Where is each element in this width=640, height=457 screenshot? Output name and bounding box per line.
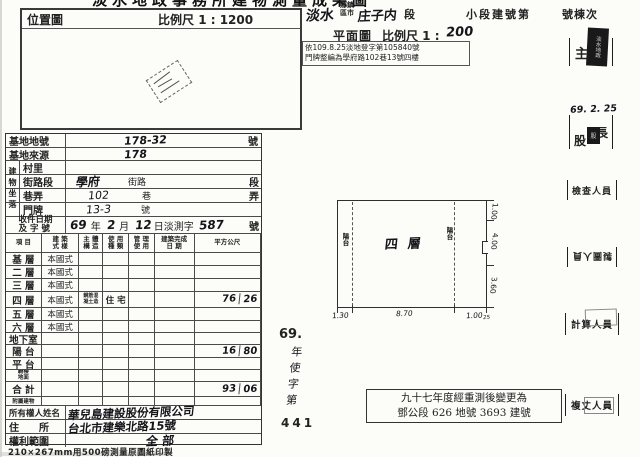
floor-area: 93: [195, 383, 241, 396]
lane-suffix: 弄: [249, 188, 259, 203]
floor-style: 本國式: [42, 308, 80, 320]
owner-addr-row: 住 所 台北市建樂北路15號: [6, 420, 261, 434]
floor-row: 五 層 本國式: [6, 308, 261, 321]
receipt-no-value: 587: [198, 218, 225, 233]
lane-mid: 巷: [142, 189, 151, 202]
use-permit-year: 69.: [279, 327, 302, 342]
plan-dashed-left: [352, 202, 353, 306]
dim-right-mid: 4.00: [489, 233, 500, 250]
floor-label: 合 計: [6, 382, 42, 396]
draftsman-label: 製圖人員: [572, 251, 612, 264]
receipt-day-value: 12: [134, 218, 152, 233]
table-row: 街路段 學府 街路 段: [6, 175, 261, 189]
dim-bottom-right: 1.00: [466, 311, 484, 321]
location-map-box: 位置圖 比例尺 1 : 1200: [20, 8, 302, 130]
table-row: 巷弄 102 巷 弄: [6, 189, 261, 203]
inspector-label: 檢查人員: [572, 184, 612, 197]
floor-area-dec: 06: [239, 383, 261, 395]
floor-label: 基 層: [6, 253, 42, 265]
floor-row: 六 層 本國式: [6, 321, 261, 333]
source-value: 178: [123, 147, 147, 161]
section-chief-stamp-text: 股: [590, 131, 596, 140]
plan-scale-value: 200: [445, 24, 474, 40]
address-change-note: 依109.8.25淡地登字第105840號 門牌整編為學府路102巷13號四樓: [302, 41, 470, 66]
dim-right-top: 1.00: [489, 203, 500, 220]
township-label: 鄉鎮 區市: [340, 1, 354, 17]
section-label: 段: [404, 6, 415, 22]
building-info-table: 建物坐落 基地地號 178-32 號 基地來源 178 村里 街路段 學府 街路…: [5, 133, 262, 445]
table-row: 基地來源 178: [6, 148, 261, 161]
chief-stamp: 淡水地政: [586, 27, 609, 66]
floor-style: 本國式: [42, 266, 80, 278]
lane-value: 102: [87, 189, 109, 203]
official-inspector: 檢查人員: [567, 180, 617, 200]
floor-style: 本國式: [42, 279, 80, 291]
paper-note: 210×267mm用500磅測量原圖紙印製: [8, 446, 173, 457]
header-area: 平方公尺: [195, 234, 261, 252]
use-permit: 69. 年使字第 441: [279, 327, 305, 430]
floor-row: 二 層 本國式: [6, 266, 261, 279]
location-map-scale: 比例尺 1 : 1200: [158, 11, 253, 28]
subsection-label: 小段建號第: [466, 6, 531, 22]
remark-line2: 鄧公段 626 地號 3693 建號: [367, 406, 561, 420]
receipt-no-label: 號: [249, 218, 259, 233]
plan-floor-label: 四層: [384, 232, 432, 253]
street-mid: 街路: [128, 175, 146, 188]
owner-addr-label: 住 所: [6, 420, 66, 433]
street-label: 街路段: [19, 175, 66, 188]
header-style: 建 築 式 樣: [42, 234, 80, 252]
door-mid: 號: [141, 203, 150, 216]
floor-label: 六 層: [6, 321, 42, 332]
table-row: 村里: [6, 161, 261, 175]
lot-value: 178-32: [123, 133, 167, 148]
use-permit-chars: 年使字第: [282, 346, 305, 411]
floor-row: 基 層 本國式: [6, 253, 261, 266]
location-map-label: 位置圖: [27, 11, 63, 28]
official-draftsman: 製圖人員: [567, 247, 617, 267]
chief-stamp-text: 淡水地政: [593, 36, 602, 58]
floor-row: 三 層 本國式: [6, 279, 261, 292]
header-use: 使 用 種 類: [103, 234, 129, 252]
floor-table-header: 項 目 建 築 式 樣 主 體 構 造 使 用 種 類 管 理 使 用 建築完成…: [6, 234, 261, 253]
note-line2: 門牌整編為學府路102巷13號四樓: [305, 53, 467, 63]
surveyor-stamp-outline: [584, 397, 614, 414]
receipt-word-label: 日淡測字: [154, 218, 194, 233]
dim-bottom-small: 25: [483, 315, 491, 321]
floor-label: 二 層: [6, 266, 42, 278]
receipt-label: 收件日期 及 字 號: [6, 217, 66, 233]
header-structure: 主 體 構 造: [79, 234, 103, 252]
section-value: 庄子内: [357, 4, 398, 24]
dim-right-bottom: 3.60: [488, 277, 499, 294]
floor-label: 平 台: [6, 358, 42, 369]
floor-label: 三 層: [6, 279, 42, 291]
header-item: 項 目: [6, 234, 42, 252]
floor-area-dec: 26: [239, 294, 261, 306]
scan-edge-left: [0, 0, 2, 457]
section-chief-label-a: 股: [574, 132, 586, 149]
lot-suffix: 號: [248, 133, 258, 148]
note-line1: 依109.8.25淡地登字第105840號: [305, 43, 467, 53]
floor-label: 地下室: [6, 333, 42, 344]
floor-row: 陽 台 16 80: [6, 345, 261, 358]
table-row: 收件日期 及 字 號 69 年 2 月 12 日淡測字 587 號: [6, 217, 261, 234]
section-chief-date: 69. 2. 25: [569, 103, 617, 116]
calculator-stamp-outline: [585, 308, 618, 326]
plan-balcony-right: 陽台: [444, 227, 454, 240]
header-mgmt: 管 理 使 用: [129, 234, 155, 252]
floor-area-dec: 80: [239, 345, 261, 357]
dim-bottom-center: 8.70: [396, 309, 414, 319]
floor-label: 五 層: [6, 308, 42, 320]
floor-label: 附屬建物: [6, 397, 42, 405]
floor-structure: 鋼筋混 凝土造: [79, 292, 103, 307]
receipt-month-value: 2: [106, 218, 116, 232]
plan-balcony-left: 陽台: [340, 233, 350, 246]
floor-use: 住 宅: [103, 292, 129, 307]
header-date: 建築完成 日 期: [155, 234, 195, 252]
plan-dashed-right: [454, 202, 455, 306]
floor-label: 陽 台: [6, 345, 42, 357]
owner-name-label: 所有權人姓名: [6, 406, 66, 419]
street-value: 學府: [75, 173, 101, 191]
floor-row: 地下室: [6, 333, 261, 345]
receipt-year-value: 69: [69, 218, 87, 233]
receipt-month-label: 月: [119, 218, 129, 233]
floor-label: 四 層: [6, 292, 42, 307]
source-label: 基地來源: [6, 148, 66, 160]
section-chief-stamp: 股: [587, 127, 600, 144]
floor-plan: 四層 陽台 陽台 1.30 8.70 1.00 25 1.00 4.00 3.6…: [330, 185, 510, 335]
lot-label: 基地地號: [6, 134, 66, 147]
floor-row: 騎樓 地面: [6, 370, 261, 382]
floor-style: 本國式: [42, 292, 80, 307]
floor-style: 本國式: [42, 253, 80, 265]
floor-row: 四 層 本國式 鋼筋混 凝土造 住 宅 76 26: [6, 292, 261, 308]
dim-bottom-left: 1.30: [332, 311, 350, 321]
receipt-year-label: 年: [91, 218, 101, 233]
street-suffix: 段: [249, 174, 259, 189]
floor-label: 騎樓 地面: [6, 370, 42, 381]
remark-line1: 九十七年度經重測後變更為: [367, 390, 561, 406]
use-permit-number: 441: [281, 416, 315, 430]
floor-style: 本國式: [42, 321, 80, 332]
floor-row: 平 台: [6, 358, 261, 370]
document-page: 淡水地政事務所建物測量成果圖 位置圖 比例尺 1 : 1200 淡水 鄉鎮 區市…: [0, 0, 640, 457]
floor-area: 76: [195, 293, 241, 306]
floor-row: 合 計 93 06: [6, 382, 261, 397]
village-label: 村里: [19, 161, 66, 174]
floor-area: 16: [195, 345, 241, 357]
lane-label: 巷弄: [19, 189, 66, 202]
plan-notch: [482, 241, 488, 254]
unit-label: 號棟次: [562, 6, 598, 22]
map-stamp-sketch: [146, 60, 193, 103]
plan-outline: [337, 200, 487, 308]
resurvey-remark-box: 九十七年度經重測後變更為 鄧公段 626 地號 3693 建號: [366, 389, 562, 423]
township-value: 淡水: [305, 4, 335, 25]
door-value: 13-3: [85, 203, 111, 217]
